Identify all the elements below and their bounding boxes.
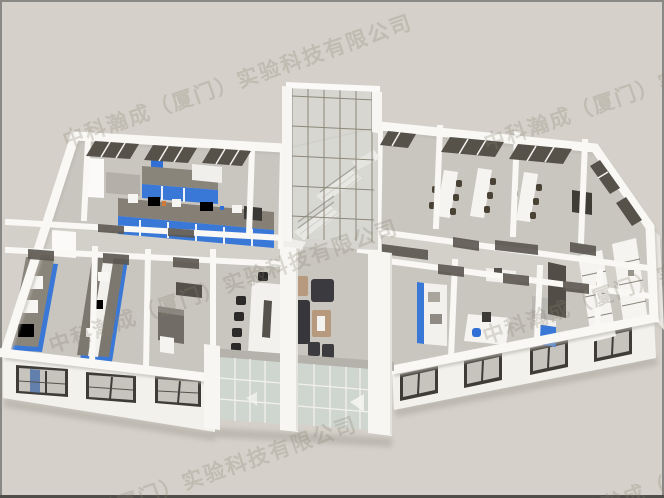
blue-chair xyxy=(472,328,481,337)
window-group xyxy=(86,141,139,159)
gray-cabinet-bank xyxy=(106,172,140,196)
entrance-pillar xyxy=(204,344,220,430)
tower-column-right xyxy=(372,90,382,134)
window xyxy=(16,365,68,397)
tall-cabinet xyxy=(88,158,104,198)
floorplan-render-canvas: 中科瀚成（厦门）实验科技有限公司中科瀚成（厦门）实验科技有限公司中科瀚成（厦门）… xyxy=(0,0,664,498)
tray xyxy=(317,316,325,331)
monitor xyxy=(482,312,491,322)
window-group xyxy=(144,145,197,163)
lab-floorplan-3d-render: 中科瀚成（厦门）实验科技有限公司中科瀚成（厦门）实验科技有限公司中科瀚成（厦门）… xyxy=(0,0,664,498)
two-seat-sofa xyxy=(311,279,334,302)
washer xyxy=(160,336,174,354)
equipment-accent xyxy=(220,206,224,210)
side-table xyxy=(192,164,222,183)
tower-column-left xyxy=(282,86,292,242)
bench-r1 xyxy=(417,282,447,346)
armchair xyxy=(322,344,334,358)
equipment-accent xyxy=(162,201,166,206)
window xyxy=(86,372,136,403)
entrance-pillar-tall xyxy=(368,250,392,436)
armchair xyxy=(308,342,320,356)
